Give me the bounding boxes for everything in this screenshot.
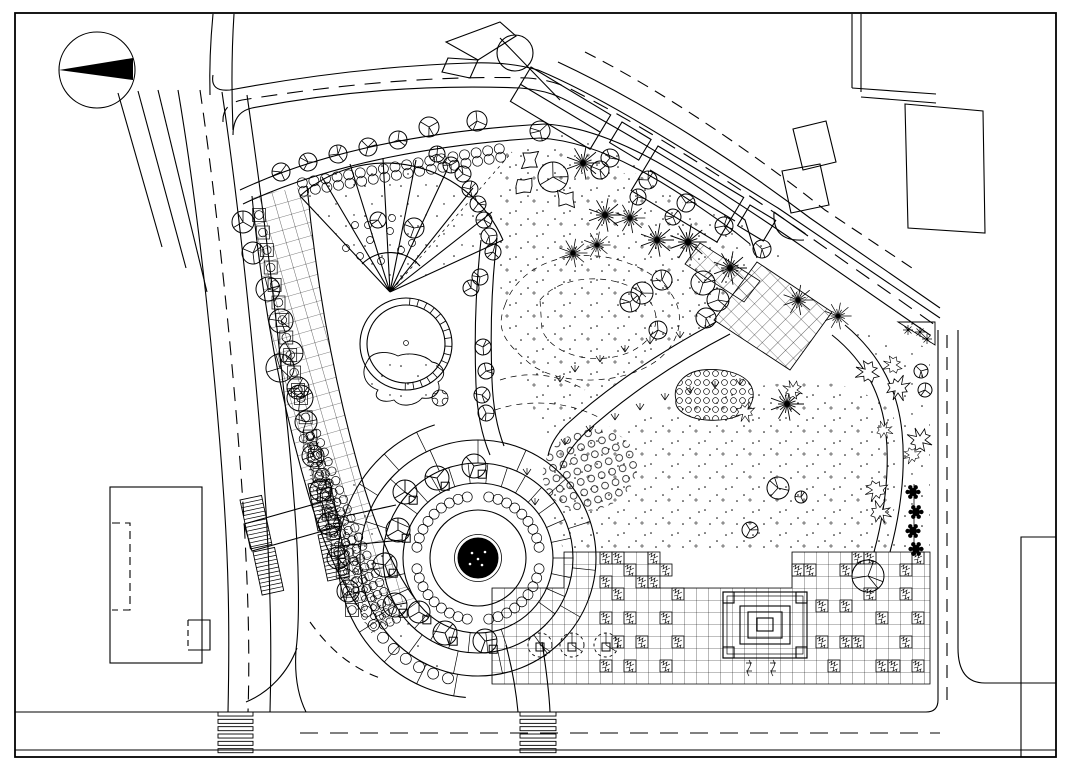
planting-cell [840, 636, 852, 648]
planting-cell [864, 552, 876, 564]
sw-inner-dashed [310, 622, 380, 678]
deciduous-tree [296, 150, 321, 175]
west-road-edge-outer [178, 90, 229, 712]
planting-cell [888, 660, 900, 672]
planting-cell [636, 636, 648, 648]
planting-cell [816, 600, 828, 612]
planting-cell [600, 612, 612, 624]
north-arrow-wedge [59, 58, 133, 80]
planting-cell [900, 564, 912, 576]
deciduous-tree [357, 136, 379, 158]
circular-pond [364, 341, 448, 407]
planting-cell [876, 612, 888, 624]
deciduous-tree [232, 211, 254, 233]
planting-cell [600, 576, 612, 588]
planting-cell [636, 576, 648, 588]
east-road-edge-outer [958, 330, 1056, 683]
zebra-crosswalks [218, 712, 556, 753]
grass-tuft [531, 498, 539, 505]
planting-cell [672, 636, 684, 648]
planting-cell [612, 636, 624, 648]
grass-tuft [611, 413, 619, 420]
se-building-corner [1021, 537, 1056, 757]
topright-street-h2 [861, 97, 936, 103]
pond-center-dot [404, 341, 409, 346]
planting-cell [648, 552, 660, 564]
grass-tuft [661, 393, 669, 400]
gate-plaza-polygon-2 [442, 58, 478, 78]
deciduous-tree [326, 142, 349, 165]
west-road-top-stub-2 [232, 14, 234, 130]
planting-cell [600, 552, 612, 564]
north-arrow-icon [59, 32, 135, 108]
tree-row-path-edge-2 [475, 240, 490, 455]
hatched-building-lower [782, 164, 829, 213]
planting-cell [912, 660, 924, 672]
site-plan-canvas [0, 0, 1075, 778]
planting-cell [912, 612, 924, 624]
grid-pavement [492, 552, 930, 684]
shrub-clump [855, 361, 879, 382]
planting-cell [624, 564, 636, 576]
grass-tuft [523, 468, 531, 475]
planting-cell [912, 552, 924, 564]
west-building-annex [188, 620, 210, 650]
pond-side-cobble [432, 390, 448, 406]
topright-street-h1 [852, 88, 936, 94]
west-road-lane-1 [118, 93, 162, 247]
planting-cell [600, 660, 612, 672]
west-building [110, 487, 202, 663]
planting-cell [804, 564, 816, 576]
ne-open-building [905, 104, 985, 233]
rock [516, 178, 532, 194]
planting-cell [660, 564, 672, 576]
deciduous-tree [419, 117, 439, 137]
deciduous-tree [440, 154, 462, 176]
planting-cell [792, 564, 804, 576]
west-building-bay-dashed [112, 523, 130, 610]
planting-cell [864, 588, 876, 600]
planting-cell [816, 636, 828, 648]
cad-viewport: { "document": { "kind": "landscape-archi… [0, 0, 1075, 778]
planting-cell [612, 588, 624, 600]
planting-cell [900, 636, 912, 648]
deciduous-tree [271, 162, 291, 182]
deciduous-tree [476, 361, 496, 381]
zebra-crosswalk [520, 712, 556, 753]
planting-cell [624, 612, 636, 624]
deciduous-tree [528, 119, 553, 144]
grass-tuft [636, 403, 644, 410]
planting-cell [672, 588, 684, 600]
west-road-lane-2 [138, 91, 186, 268]
planting-cell [900, 588, 912, 600]
west-road-lane-4 [222, 92, 271, 712]
sw-corner-path [246, 648, 297, 702]
planting-cell [840, 564, 852, 576]
deciduous-tree [472, 385, 492, 405]
gate-plaza-polygon-1 [446, 22, 516, 60]
planting-cell [828, 660, 840, 672]
plaza-tree [462, 454, 488, 478]
deciduous-tree [469, 266, 492, 289]
planting-cell [612, 552, 624, 564]
planting-cell [852, 552, 864, 564]
deciduous-tree [385, 127, 410, 152]
west-road-centerline [200, 90, 249, 712]
hatched-building-upper [793, 121, 836, 170]
planting-cell [648, 576, 660, 588]
planting-cell [624, 660, 636, 672]
zebra-crosswalk [218, 712, 253, 753]
planting-cell [852, 636, 864, 648]
planting-cell [840, 600, 852, 612]
planting-cell [660, 660, 672, 672]
planting-cell [876, 660, 888, 672]
planting-cell [660, 612, 672, 624]
